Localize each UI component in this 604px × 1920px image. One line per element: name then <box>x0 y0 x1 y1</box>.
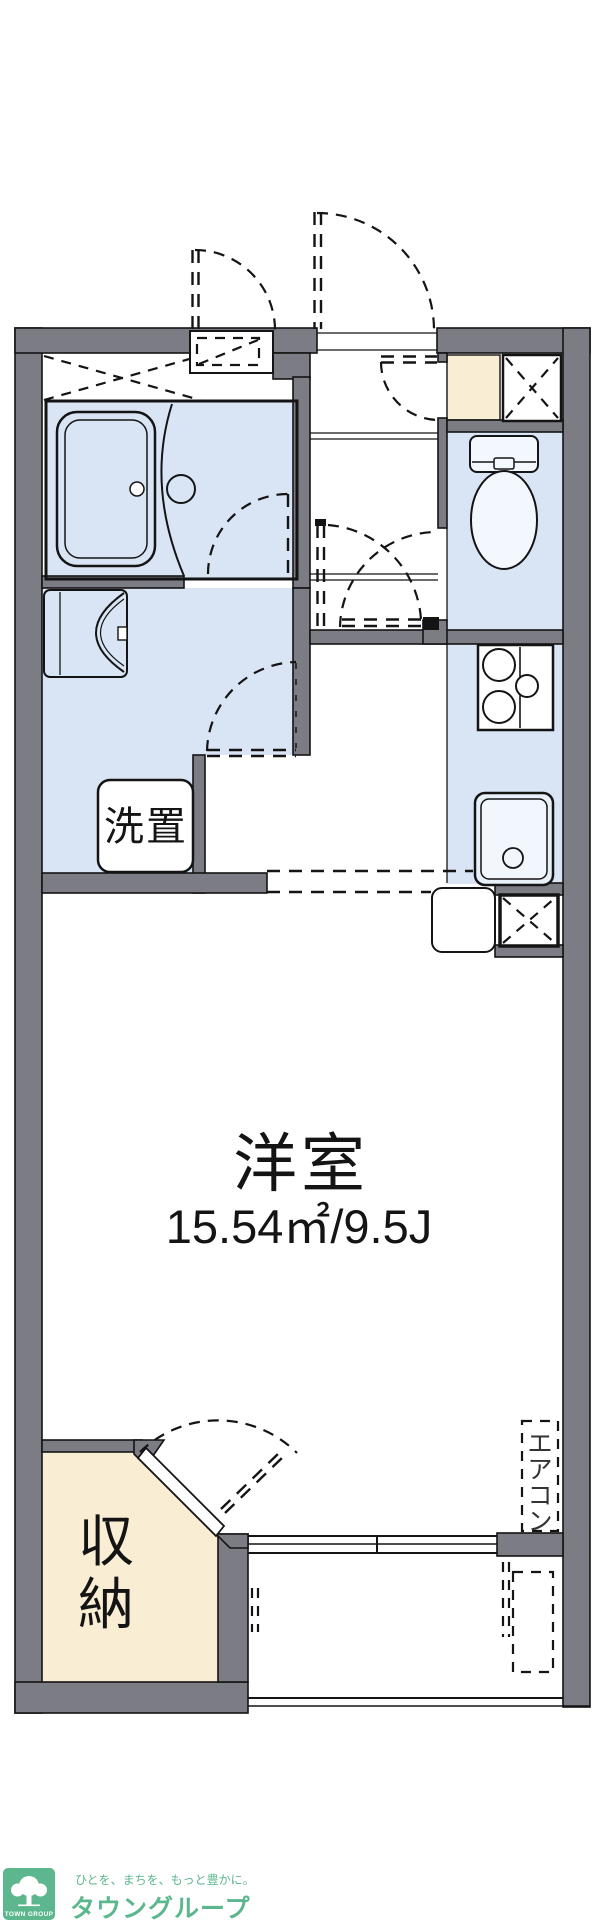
wall-storage-right <box>218 1534 248 1682</box>
wall-genkan-west <box>438 418 447 528</box>
town-group-logo: TOWN GROUP ひとを、まちを、もっと豊かに。 タウングループ <box>3 1868 255 1920</box>
balcony <box>248 1562 590 1706</box>
aircon-char-2: ア <box>527 1456 552 1484</box>
wall-bath-corner <box>273 353 310 379</box>
logo-brand-text: タウングループ <box>70 1895 251 1920</box>
floor-plan-page: 洗置 <box>0 0 604 1920</box>
toilet-room <box>470 436 538 569</box>
wall-right <box>563 328 590 1707</box>
bath-faucet-counter <box>167 475 195 503</box>
main-room-label: 洋室 <box>233 1128 369 1200</box>
toilet-tank-button <box>494 458 514 469</box>
aircon-char-1: エ <box>527 1430 552 1458</box>
entrance-genkan-floor <box>447 355 500 420</box>
wall-storage-top <box>42 1440 142 1452</box>
washer-space-label: 洗置 <box>104 805 188 849</box>
toilet-door-jamb <box>423 617 439 630</box>
aircon-char-3: コ <box>527 1482 552 1510</box>
entrance-door-arc <box>317 213 434 330</box>
toilet-bowl <box>471 471 537 569</box>
wall-room-north <box>42 873 267 893</box>
storage-door-open-leaf1 <box>221 1452 280 1509</box>
hall-door-jamb1 <box>315 519 326 526</box>
washbasin-faucet <box>118 627 127 640</box>
storage-door-open-leaf2 <box>225 1456 284 1513</box>
bathtub-drain <box>130 482 144 496</box>
wall-left <box>15 328 42 1713</box>
wall-window-piece <box>497 1533 563 1556</box>
stove-burner-small <box>516 675 538 697</box>
genkan-door-arc <box>381 362 439 420</box>
storage-door-arc <box>140 1420 297 1453</box>
aircon-char-4: ン <box>527 1508 552 1536</box>
meterbox-door-arc <box>195 250 275 330</box>
outdoor-unit-space <box>513 1572 553 1672</box>
refrigerator-space <box>432 888 495 952</box>
kitchen-sink-inner <box>481 799 547 879</box>
storage-label-char2: 納 <box>78 1573 134 1636</box>
logo-tagline: ひとを、まちを、もっと豊かに。 <box>75 1873 255 1887</box>
wall-genkan-west-stub <box>438 353 447 362</box>
main-room: 洋室 15.54㎡/9.5J エ ア コ ン <box>166 1128 558 1553</box>
floor-plan-drawing: 洗置 <box>0 0 604 1920</box>
logo-badge-text: TOWN GROUP <box>5 1911 54 1918</box>
storage-label-char1: 収 <box>78 1510 134 1573</box>
main-room-size-label: 15.54㎡/9.5J <box>166 1200 433 1253</box>
wall-bottom-left <box>15 1682 248 1713</box>
